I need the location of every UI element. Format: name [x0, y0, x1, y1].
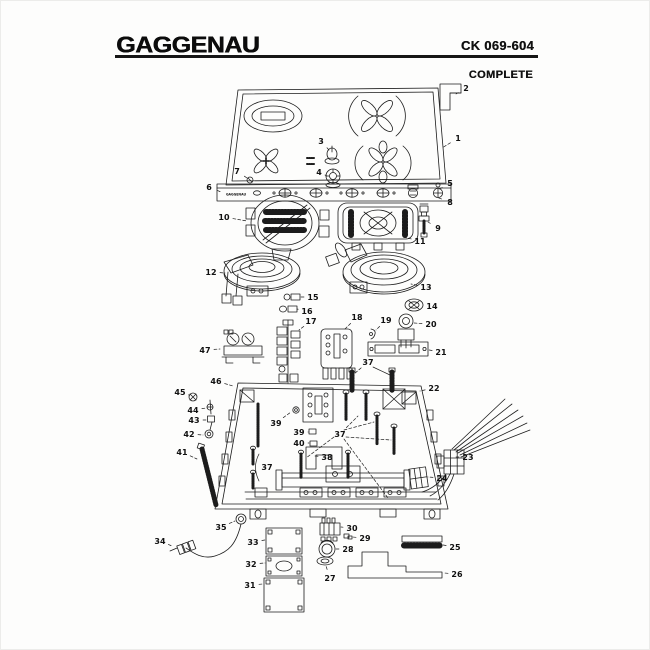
leader-line-19: [376, 326, 380, 330]
screw-37-pair-top: [349, 367, 395, 391]
part-label-10: 10: [218, 213, 230, 222]
part-label-39: 39: [270, 419, 282, 428]
round-knob-b: [433, 183, 442, 198]
switch-47: [222, 330, 264, 363]
cover-plate-31: [264, 578, 304, 612]
switch-bank-17: [277, 320, 300, 383]
part-label-34: 34: [154, 537, 166, 546]
round-knob-a: [408, 185, 418, 198]
clip-29: [344, 534, 352, 539]
cover-plate-32: [266, 556, 302, 576]
coil-element-right-13: [343, 244, 425, 294]
heater-element-bar: [276, 466, 410, 490]
leader-line-41: [190, 456, 197, 459]
capacitor-20: [398, 314, 414, 348]
part-label-17: 17: [305, 317, 316, 326]
connector-24: [409, 467, 429, 489]
thermostat-probe-9: [419, 204, 429, 237]
leader-line-10: [233, 219, 247, 221]
part-label-18: 18: [351, 313, 363, 322]
part-label-9: 9: [435, 224, 441, 233]
cooktop-panel: [226, 88, 446, 188]
part-label-31: 31: [244, 581, 256, 590]
part-label-12: 12: [205, 268, 216, 277]
leader-line-33: [262, 540, 265, 541]
part-label-39: 39: [293, 428, 305, 437]
part-label-23: 23: [462, 453, 473, 462]
clip-19: [370, 329, 376, 339]
part-label-43: 43: [188, 416, 199, 425]
part-label-38: 38: [321, 453, 333, 462]
part-label-21: 21: [435, 348, 447, 357]
strip-logo: GAGGENAU: [226, 193, 247, 197]
radiant-burner-left: [246, 195, 329, 260]
leader-line-35: [229, 521, 235, 523]
part-label-8: 8: [447, 198, 453, 207]
cover-plate-33: [266, 528, 302, 554]
control-module-18: [321, 329, 352, 379]
part-label-46: 46: [210, 377, 222, 386]
part-label-20: 20: [425, 320, 437, 329]
part-label-24: 24: [436, 474, 448, 483]
leader-line-9: [428, 222, 430, 223]
leader-line-25: [443, 545, 446, 546]
part-label-3: 3: [318, 137, 324, 146]
leader-line-3: [327, 148, 329, 150]
leader-line-18: [345, 323, 351, 329]
grommet-35-wire-34: [170, 514, 246, 557]
coil-element-left-12: [222, 253, 300, 305]
leader-line-6: [217, 190, 221, 192]
terminal-block-30: [320, 518, 340, 541]
part-label-33: 33: [247, 538, 258, 547]
part-label-15: 15: [307, 293, 319, 302]
part-label-29: 29: [359, 534, 371, 543]
part-label-41: 41: [176, 448, 188, 457]
part-label-11: 11: [414, 237, 426, 246]
part-label-28: 28: [342, 545, 354, 554]
burner-zone-bottom-right: [355, 141, 411, 183]
part-label-37: 37: [362, 358, 373, 367]
burner-zone-bottom-left: [252, 147, 280, 175]
leader-line-7: [244, 176, 247, 178]
knob-28-ring-27: [317, 540, 335, 565]
leader-line-44: [202, 408, 206, 409]
part-label-13: 13: [420, 283, 431, 292]
leader-line-39: [283, 412, 291, 418]
burner-zone-top-right: [349, 96, 406, 136]
leader-line-4: [325, 175, 327, 176]
part-label-27: 27: [324, 574, 335, 583]
part-label-45: 45: [174, 388, 186, 397]
part-label-14: 14: [426, 302, 438, 311]
rear-bracket: [440, 84, 461, 110]
part-label-30: 30: [346, 524, 358, 533]
clip-15: [284, 294, 300, 300]
screws-37-left: [251, 446, 260, 488]
trim-profile-26: [348, 552, 442, 578]
part-label-19: 19: [380, 316, 392, 325]
part-label-47: 47: [199, 346, 210, 355]
screw-part-7: [247, 177, 253, 183]
part-label-22: 22: [428, 384, 439, 393]
catalog-page: GAGGENAU CK 069-604 COMPLETE: [0, 0, 650, 650]
part-label-4: 4: [316, 168, 322, 177]
clip-16: [280, 306, 298, 312]
part-label-2: 2: [463, 84, 469, 93]
part-label-5: 5: [447, 179, 453, 188]
part-label-35: 35: [215, 523, 227, 532]
knob-part-4: [326, 169, 340, 188]
part-label-44: 44: [187, 406, 199, 415]
chassis-tray: [215, 383, 448, 519]
part-label-32: 32: [245, 560, 256, 569]
leader-line-22: [420, 390, 425, 391]
leader-line-21: [429, 350, 432, 351]
leader-line-17: [299, 326, 304, 330]
leader-line-27: [326, 566, 327, 569]
part-number-labels: 1234567891011121314151617181920212223242…: [154, 84, 473, 590]
part-label-1: 1: [455, 134, 461, 143]
part-label-26: 26: [451, 570, 463, 579]
part-label-6: 6: [206, 183, 212, 192]
terminal-strip-21: [368, 342, 428, 356]
part-label-42: 42: [183, 430, 194, 439]
leader-line-37: [346, 416, 358, 428]
part-label-37: 37: [261, 463, 272, 472]
ring-14: [405, 299, 423, 311]
part-label-7: 7: [234, 167, 240, 176]
trim-bar-25: [402, 536, 442, 546]
part-label-37: 37: [334, 430, 345, 439]
radiant-burner-right: [326, 203, 418, 266]
part-label-16: 16: [301, 307, 313, 316]
knob-part-3: [307, 146, 339, 164]
exploded-parts-diagram: GAGGENAU: [0, 0, 650, 650]
leader-line-46: [225, 384, 233, 386]
part-label-40: 40: [293, 439, 305, 448]
leader-line-34: [168, 544, 172, 546]
part-label-25: 25: [449, 543, 461, 552]
